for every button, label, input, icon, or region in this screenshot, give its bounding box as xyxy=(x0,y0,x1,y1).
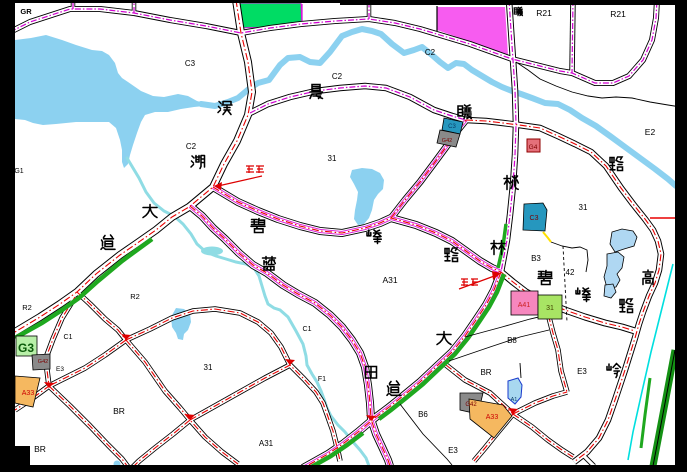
svg-text:BR: BR xyxy=(34,444,46,454)
svg-text:GR: GR xyxy=(20,7,32,16)
svg-text:A1: A1 xyxy=(511,397,518,403)
svg-text:BR: BR xyxy=(113,406,125,416)
svg-text:C2: C2 xyxy=(332,72,343,81)
svg-text:C3: C3 xyxy=(185,59,196,68)
svg-text:C1: C1 xyxy=(64,334,73,341)
svg-text:R2: R2 xyxy=(22,303,32,312)
svg-text:G42: G42 xyxy=(38,359,48,365)
svg-text:A31: A31 xyxy=(259,439,274,448)
svg-text:A31: A31 xyxy=(382,275,397,285)
svg-text:R2: R2 xyxy=(130,292,140,301)
svg-text:B8: B8 xyxy=(507,336,517,345)
svg-text:C2: C2 xyxy=(186,142,197,151)
svg-text:31: 31 xyxy=(204,363,213,372)
svg-text:E3: E3 xyxy=(577,367,587,376)
svg-text:C3: C3 xyxy=(448,124,456,130)
svg-text:31: 31 xyxy=(579,203,588,212)
svg-text:BR: BR xyxy=(480,368,491,377)
svg-text:C1: C1 xyxy=(303,326,312,333)
svg-text:B6: B6 xyxy=(418,410,428,419)
svg-text:G4: G4 xyxy=(529,144,538,151)
svg-text:G42: G42 xyxy=(442,138,452,144)
svg-text:A41: A41 xyxy=(518,302,531,309)
svg-text:31: 31 xyxy=(328,154,337,163)
svg-text:A33: A33 xyxy=(22,390,35,397)
svg-text:42: 42 xyxy=(566,268,575,277)
svg-text:G1: G1 xyxy=(14,168,23,175)
svg-text:B3: B3 xyxy=(531,254,541,263)
svg-text:E3: E3 xyxy=(448,446,458,455)
svg-text:E3: E3 xyxy=(56,366,64,373)
svg-text:31: 31 xyxy=(546,305,554,312)
svg-text:G3: G3 xyxy=(18,341,34,355)
svg-text:C2: C2 xyxy=(425,48,436,57)
svg-text:F1: F1 xyxy=(318,376,326,383)
svg-text:G42: G42 xyxy=(465,402,477,408)
svg-text:A33: A33 xyxy=(486,414,499,421)
svg-text:E2: E2 xyxy=(645,127,656,137)
svg-text:R21: R21 xyxy=(610,9,626,19)
svg-text:C3: C3 xyxy=(530,215,539,222)
svg-text:R21: R21 xyxy=(536,8,552,18)
